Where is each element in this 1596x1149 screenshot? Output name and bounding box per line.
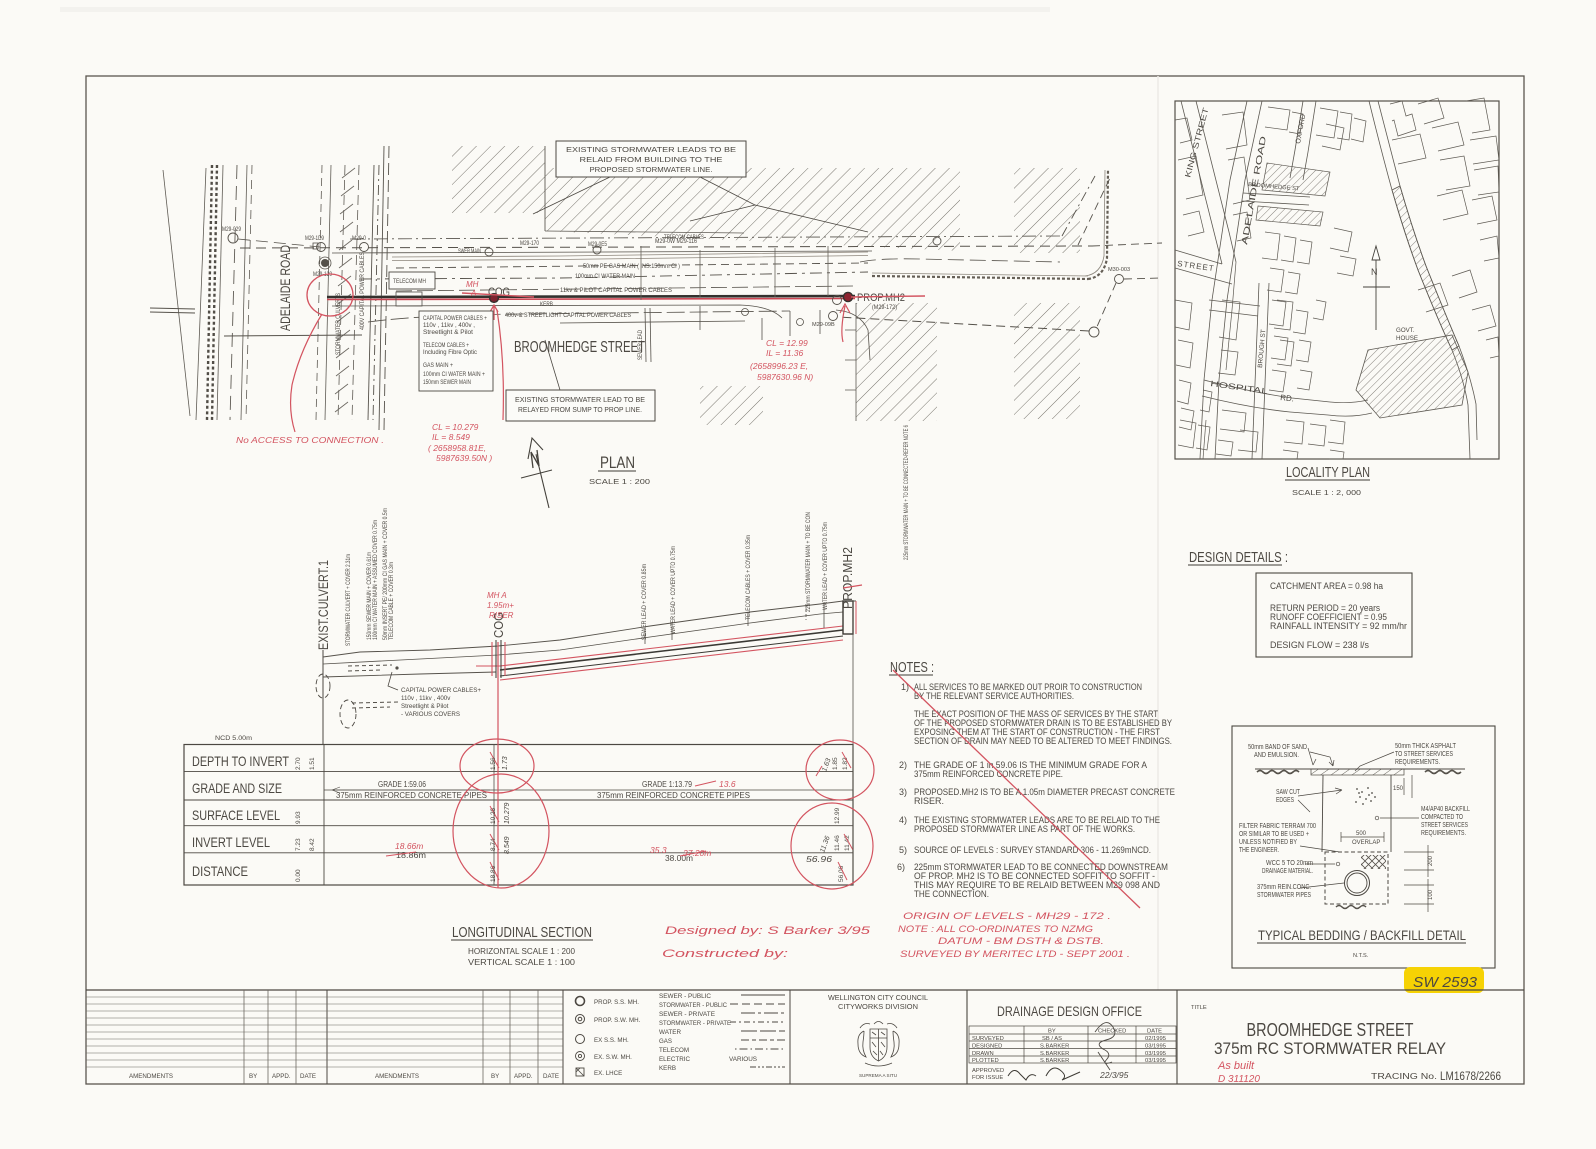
- svg-text:M30-003: M30-003: [1108, 267, 1130, 273]
- svg-text:02/1995: 02/1995: [1145, 1036, 1166, 1042]
- svg-text:Including Fibre Optic: Including Fibre Optic: [423, 349, 477, 356]
- svg-text:FILTER FABRIC TERRAM 700: FILTER FABRIC TERRAM 700: [1239, 823, 1316, 830]
- svg-text:SCALE 1 : 2, 000: SCALE 1 : 2, 000: [1292, 490, 1361, 497]
- svg-text:(2658996.23 E,: (2658996.23 E,: [750, 361, 808, 371]
- svg-text:As built: As built: [1217, 1060, 1255, 1072]
- svg-text:APPD.: APPD.: [514, 1073, 533, 1080]
- svg-text:SURFACE LEVEL: SURFACE LEVEL: [192, 807, 280, 823]
- svg-text:FOR ISSUE: FOR ISSUE: [972, 1075, 1003, 1081]
- svg-text:150mm SEWER MAIN: 150mm SEWER MAIN: [423, 379, 471, 386]
- svg-text:ORIGIN OF LEVELS - MH29: ORIGIN OF LEVELS - MH29 - 172 .: [903, 911, 1111, 922]
- svg-text:CATCHMENT AREA = 0.98 ha: CATCHMENT AREA = 0.98 ha: [1270, 581, 1383, 591]
- svg-text:CHECKED: CHECKED: [1098, 1029, 1126, 1035]
- svg-text:GRADE AND SIZE: GRADE AND SIZE: [192, 780, 282, 796]
- svg-text:9.93: 9.93: [295, 811, 302, 824]
- svg-text:BROOMHEDGE STREET: BROOMHEDGE STREET: [1247, 1020, 1414, 1040]
- svg-text:SURVEYED BY MERITEC LTD: SURVEYED BY MERITEC LTD - SEPT 2001 .: [900, 949, 1130, 960]
- svg-text:SURVEYED: SURVEYED: [972, 1036, 1004, 1042]
- svg-text:SB / AS: SB / AS: [1042, 1036, 1062, 1042]
- svg-text:APPROVED: APPROVED: [972, 1068, 1004, 1074]
- svg-text:EXISTING STORMWATER LEADS TO B: EXISTING STORMWATER LEADS TO BE: [566, 147, 736, 154]
- svg-text:- VARIOUS COVERS: - VARIOUS COVERS: [401, 711, 460, 718]
- svg-text:AND EMULSION.: AND EMULSION.: [1254, 752, 1299, 759]
- svg-text:OR SIMILAR TO BE USED +: OR SIMILAR TO BE USED +: [1239, 831, 1309, 838]
- svg-text:110v , 11kv , 400v ,: 110v , 11kv , 400v ,: [423, 322, 475, 329]
- svg-text:M29-170: M29-170: [520, 240, 539, 247]
- svg-text:SEWER - PUBLIC: SEWER - PUBLIC: [659, 993, 712, 1000]
- svg-text:PLAN: PLAN: [600, 454, 635, 472]
- svg-text:IL = 11.36: IL = 11.36: [766, 348, 804, 358]
- svg-text:0.00: 0.00: [295, 869, 302, 882]
- svg-text:PLOTTED: PLOTTED: [972, 1058, 999, 1064]
- svg-text:TELECOM CABLES +: TELECOM CABLES +: [423, 342, 469, 349]
- svg-text:DATE: DATE: [1147, 1029, 1162, 1035]
- svg-text:GRADE 1:13.79: GRADE 1:13.79: [642, 780, 692, 789]
- svg-text:RAINFALL INTENSITY = 92 mm/hr: RAINFALL INTENSITY = 92 mm/hr: [1270, 621, 1407, 631]
- svg-text:VERTICAL SCALE 1 : 100: VERTICAL SCALE 1 : 100: [468, 958, 576, 967]
- svg-text:VARIOUS: VARIOUS: [729, 1056, 757, 1063]
- svg-text:5): 5): [899, 845, 907, 855]
- svg-text:100mm CI WATER MAIN +: 100mm CI WATER MAIN +: [423, 371, 485, 378]
- svg-text:03/1995: 03/1995: [1145, 1051, 1166, 1057]
- svg-text:SWER MAIN: SWER MAIN: [458, 248, 481, 255]
- svg-text:12.99: 12.99: [834, 807, 841, 824]
- svg-text:400V CAPITAL POWER CABLES: 400V CAPITAL POWER CABLES: [359, 252, 366, 330]
- svg-text:M29-0E5: M29-0E5: [588, 241, 607, 248]
- svg-text:BY THE RELEVANT SERVICE AUTHOR: BY THE RELEVANT SERVICE AUTHORITIES.: [914, 691, 1074, 701]
- svg-text:100mm CI WATER MAIN: 100mm CI WATER MAIN: [575, 273, 635, 280]
- svg-text:DRAINAGE DESIGN OFFICE: DRAINAGE DESIGN OFFICE: [997, 1003, 1142, 1019]
- svg-text:150: 150: [1393, 786, 1404, 792]
- svg-text:Streetlight & Pilot: Streetlight & Pilot: [423, 329, 473, 336]
- svg-text:TELECOM MH: TELECOM MH: [393, 279, 426, 285]
- svg-text:50mm BAND OF SAND: 50mm BAND OF SAND: [1248, 744, 1307, 751]
- svg-text:THE CONNECTION.: THE CONNECTION.: [914, 889, 989, 899]
- svg-text:SUPREMA A SITU: SUPREMA A SITU: [859, 1073, 897, 1078]
- svg-text:10.279: 10.279: [504, 802, 511, 824]
- svg-text:N: N: [1371, 267, 1378, 277]
- svg-text:( 2658958.81E,: ( 2658958.81E,: [428, 443, 486, 453]
- svg-text:DESIGNED: DESIGNED: [972, 1044, 1002, 1050]
- svg-text:DRAWN: DRAWN: [972, 1051, 994, 1057]
- svg-text:STORMWATER CULVERTS: STORMWATER CULVERTS: [335, 293, 342, 355]
- svg-text:375mm REINFORCED CONCRETE PIPE: 375mm REINFORCED CONCRETE PIPES: [597, 791, 750, 800]
- svg-text:BY: BY: [249, 1073, 257, 1080]
- svg-text:PROP. S.S. MH.: PROP. S.S. MH.: [594, 999, 639, 1006]
- svg-text:35.3: 35.3: [650, 845, 667, 855]
- svg-text:DESIGN FLOW = 238 l/s: DESIGN FLOW = 238 l/s: [1270, 640, 1369, 650]
- svg-text:TYPICAL BEDDING / BACKFILL DET: TYPICAL BEDDING / BACKFILL DETAIL: [1258, 928, 1466, 943]
- svg-text:400v-& STREETLIGHT CAPITAL POW: 400v-& STREETLIGHT CAPITAL POWER CABLES: [505, 312, 631, 319]
- svg-text:M4/AP40 BACKFILL: M4/AP40 BACKFILL: [1421, 806, 1470, 813]
- svg-text:50mm PE GAS MAIN ( INS.150mm C: 50mm PE GAS MAIN ( INS.150mm CI ): [583, 263, 680, 270]
- svg-text:03/1995: 03/1995: [1145, 1058, 1166, 1064]
- svg-text:100: 100: [1428, 889, 1434, 900]
- svg-text:200: 200: [1428, 855, 1434, 866]
- svg-text:RELAID FROM BUILDING TO THE: RELAID FROM BUILDING TO THE: [580, 157, 723, 164]
- svg-text:REQUIREMENTS.: REQUIREMENTS.: [1421, 830, 1466, 837]
- svg-text:ADELAIDE ROAD: ADELAIDE ROAD: [277, 245, 293, 331]
- svg-text:LONGITUDINAL SECTION: LONGITUDINAL SECTION: [452, 924, 592, 941]
- svg-text:TELECOM CABLE + COVER 0.3m: TELECOM CABLE + COVER 0.3m: [388, 562, 395, 640]
- svg-text:STORMWATER PIPES: STORMWATER PIPES: [1257, 892, 1311, 899]
- svg-text:RISER.: RISER.: [914, 796, 944, 806]
- svg-text:5987639.50N ): 5987639.50N ): [436, 453, 492, 463]
- svg-text:DATUM - BM DSTH & DSTB.: DATUM - BM DSTH & DSTB.: [938, 936, 1104, 947]
- svg-text:225mm STORMWATER MAIN + TO BE: 225mm STORMWATER MAIN + TO BE CONNECTED-…: [903, 425, 910, 560]
- svg-text:CAPITAL POWER CABLES+: CAPITAL POWER CABLES+: [401, 687, 481, 694]
- svg-text:ELECTRIC: ELECTRIC: [659, 1056, 691, 1063]
- svg-text:375m RC STORMWATER RELAY: 375m RC STORMWATER RELAY: [1214, 1039, 1446, 1058]
- svg-text:DRAINAGE MATERIAL.: DRAINAGE MATERIAL.: [1262, 868, 1313, 875]
- svg-text:GAS MAIN +: GAS MAIN +: [423, 362, 453, 369]
- svg-text:8.42: 8.42: [309, 838, 316, 851]
- svg-text:SAW CUT: SAW CUT: [1276, 789, 1301, 796]
- svg-text:INVERT LEVEL: INVERT LEVEL: [192, 834, 270, 850]
- svg-text:NCD 5.00m: NCD 5.00m: [215, 735, 252, 742]
- svg-text:1.51: 1.51: [309, 757, 316, 770]
- svg-text:KERB: KERB: [659, 1065, 676, 1072]
- svg-text:110v , 11kv , 400v: 110v , 11kv , 400v: [401, 695, 451, 702]
- svg-text:N.T.S.: N.T.S.: [1353, 953, 1369, 959]
- svg-text:STORMWATER CULVERT + COVER 2.3: STORMWATER CULVERT + COVER 2.31m: [345, 554, 352, 646]
- svg-text:CITYWORKS DIVISION: CITYWORKS DIVISION: [838, 1004, 918, 1011]
- svg-text:OVERLAP: OVERLAP: [1352, 840, 1380, 846]
- svg-text:56.96: 56.96: [806, 855, 833, 864]
- svg-text:DEPTH TO INVERT: DEPTH TO INVERT: [192, 753, 289, 769]
- svg-text:COMPACTED TO: COMPACTED TO: [1421, 814, 1463, 821]
- svg-text:WATER: WATER: [659, 1029, 682, 1036]
- svg-text:EDGES: EDGES: [1276, 797, 1294, 804]
- svg-text:BY: BY: [491, 1073, 499, 1080]
- svg-text:RD.: RD.: [1280, 393, 1295, 403]
- svg-text:225mm STORMWATER MAIN + TO BE: 225mm STORMWATER MAIN + TO BE CON: [805, 512, 812, 612]
- svg-text:TELECOM CABLES + COVER 0.35m: TELECOM CABLES + COVER 0.35m: [745, 535, 752, 620]
- svg-text:3): 3): [899, 787, 907, 797]
- svg-text:AMENDMENTS: AMENDMENTS: [375, 1073, 419, 1080]
- svg-text:D 311120: D 311120: [1218, 1074, 1260, 1085]
- svg-text:M29-0: M29-0: [352, 235, 366, 242]
- svg-text:Designed by: S Barker 3/95: Designed by: S Barker 3/95: [665, 925, 871, 937]
- svg-text:18.66m: 18.66m: [395, 841, 423, 851]
- svg-text:APPD.: APPD.: [272, 1073, 291, 1080]
- svg-text:SCALE 1 : 200: SCALE 1 : 200: [589, 477, 650, 486]
- svg-text:TRACING No.: TRACING No.: [1371, 1071, 1437, 1081]
- svg-text:PROPOSED STORMWATER LINE AS PA: PROPOSED STORMWATER LINE AS PART OF THE …: [914, 824, 1135, 834]
- svg-text:AMENDMENTS: AMENDMENTS: [129, 1073, 173, 1080]
- svg-text:500: 500: [1356, 831, 1367, 837]
- svg-text:EX S.S. MH.: EX S.S. MH.: [594, 1037, 629, 1044]
- svg-text:11.42: 11.42: [844, 835, 851, 851]
- svg-text:PROPOSED STORMWATER LINE.: PROPOSED STORMWATER LINE.: [590, 167, 713, 174]
- svg-text:100mm CI WATER MAIN + ASSUMED: 100mm CI WATER MAIN + ASSUMED COVER 0.75…: [372, 520, 379, 640]
- svg-text:BROOMHEDGE STREET: BROOMHEDGE STREET: [514, 339, 645, 356]
- svg-text:COG: COG: [488, 285, 510, 299]
- svg-text:6): 6): [897, 862, 905, 872]
- svg-text:M29-1D9: M29-1D9: [305, 235, 324, 242]
- svg-text:LOCALITY PLAN: LOCALITY PLAN: [1286, 464, 1370, 481]
- svg-text:WELLINGTON CITY COUNCIL: WELLINGTON CITY COUNCIL: [828, 995, 928, 1002]
- svg-text:1.73: 1.73: [502, 756, 509, 770]
- svg-text:UNLESS NOTIFIED BY: UNLESS NOTIFIED BY: [1239, 839, 1297, 846]
- svg-text:2): 2): [899, 760, 907, 770]
- svg-text:PROP.MH2: PROP.MH2: [841, 547, 855, 609]
- svg-text:SEWER - PRIVATE: SEWER - PRIVATE: [659, 1011, 715, 1018]
- svg-text:PROP. S.W. MH.: PROP. S.W. MH.: [594, 1017, 641, 1024]
- svg-text:KERB: KERB: [540, 301, 553, 308]
- svg-text:No ACCESS TO CONNECTION .: No ACCESS TO CONNECTION .: [236, 435, 384, 445]
- svg-text:DATE: DATE: [300, 1073, 316, 1080]
- svg-text:M29-029: M29-029: [222, 226, 241, 233]
- svg-text:NOTE : ALL CO-ORDINATES TO: NOTE : ALL CO-ORDINATES TO NZMG: [898, 924, 1093, 935]
- svg-text:5987630.96 N): 5987630.96 N): [757, 372, 813, 382]
- svg-text:EX. S.W. MH.: EX. S.W. MH.: [594, 1054, 632, 1061]
- svg-text:2.70: 2.70: [295, 757, 302, 770]
- svg-text:SECTION OF DRAIN MAY NEED TO B: SECTION OF DRAIN MAY NEED TO BE ALTERED …: [914, 736, 1172, 746]
- svg-text:MH: MH: [466, 280, 479, 289]
- svg-text:13.6: 13.6: [719, 779, 736, 789]
- svg-text:EXISTING STORMWATER LEAD TO BE: EXISTING STORMWATER LEAD TO BE: [515, 397, 645, 404]
- svg-text:M29-09B: M29-09B: [812, 322, 835, 328]
- svg-text:11.46: 11.46: [834, 835, 841, 851]
- svg-text:HORIZONTAL SCALE 1 : 200: HORIZONTAL SCALE 1 : 200: [468, 947, 576, 956]
- svg-text:03/1995: 03/1995: [1145, 1044, 1166, 1050]
- svg-text:375mm REINFORCED CONCRETE PIPE: 375mm REINFORCED CONCRETE PIPE.: [914, 769, 1063, 779]
- svg-text:375mm REINFORCED CONCRETE PIPE: 375mm REINFORCED CONCRETE PIPES: [336, 791, 487, 800]
- svg-text:Constructed by:: Constructed by:: [662, 948, 788, 960]
- svg-text:A: A: [470, 289, 476, 298]
- svg-text:22/3/95: 22/3/95: [1099, 1070, 1129, 1080]
- svg-text:EXIST.CULVERT.1: EXIST.CULVERT.1: [315, 560, 331, 650]
- svg-text:THE ENGINEER.: THE ENGINEER.: [1239, 847, 1279, 854]
- svg-text:(M29-172): (M29-172): [872, 304, 897, 311]
- svg-text:WATER LEAD + COVER UPTO 0.75m: WATER LEAD + COVER UPTO 0.75m: [670, 546, 677, 634]
- svg-text:STORMWATER - PRIVATE: STORMWATER - PRIVATE: [659, 1020, 731, 1027]
- svg-text:HOUSE: HOUSE: [1396, 335, 1418, 342]
- svg-text:BY: BY: [1048, 1029, 1056, 1035]
- svg-text:REQUIREMENTS.: REQUIREMENTS.: [1395, 759, 1440, 766]
- svg-text:GRADE 1:59.06: GRADE 1:59.06: [378, 780, 426, 789]
- svg-text:GOVT.: GOVT.: [1396, 327, 1415, 334]
- svg-text:CAPITAL POWER CABLES +: CAPITAL POWER CABLES +: [423, 315, 487, 322]
- svg-text:PROP.MH2: PROP.MH2: [857, 292, 905, 304]
- svg-text:IL = 8.549: IL = 8.549: [432, 432, 470, 442]
- svg-text:Streetlight & Pilot: Streetlight & Pilot: [401, 703, 449, 710]
- svg-text:LM1678/2266: LM1678/2266: [1440, 1071, 1501, 1083]
- svg-text:TITLE: TITLE: [1191, 1005, 1207, 1011]
- svg-text:GAS: GAS: [659, 1038, 672, 1045]
- svg-text:S.BARKER: S.BARKER: [1040, 1044, 1069, 1050]
- svg-text:DATE: DATE: [543, 1073, 559, 1080]
- svg-text:11kv & PILOT CAPITAL POWER CAB: 11kv & PILOT CAPITAL POWER CABLES: [560, 287, 672, 294]
- svg-text:RISER: RISER: [489, 611, 514, 620]
- svg-text:50mm THICK ASPHALT: 50mm THICK ASPHALT: [1395, 743, 1457, 750]
- svg-text:S.BARKER: S.BARKER: [1040, 1051, 1069, 1057]
- svg-text:STORMWATER - PUBLIC: STORMWATER - PUBLIC: [659, 1002, 728, 1009]
- svg-text:SOURCE OF LEVELS : SURVEY STAN: SOURCE OF LEVELS : SURVEY STANDARD 306 -…: [914, 845, 1151, 855]
- svg-text:SEWER LEAD + COVER 0.85m: SEWER LEAD + COVER 0.85m: [641, 564, 648, 640]
- svg-text:SW 2593: SW 2593: [1413, 974, 1478, 991]
- svg-text:1.95m+: 1.95m+: [487, 601, 514, 610]
- svg-text:DISTANCE: DISTANCE: [192, 863, 248, 879]
- svg-text:1.85: 1.85: [832, 757, 839, 770]
- svg-text:S.BARKER: S.BARKER: [1040, 1058, 1069, 1064]
- svg-text:PROPOSED.MH2 IS TO BE A 1.05m: PROPOSED.MH2 IS TO BE A 1.05m DIAMETER P…: [914, 787, 1175, 797]
- svg-text:4): 4): [899, 815, 907, 825]
- svg-text:8.549: 8.549: [504, 836, 511, 854]
- svg-text:TO STREET SERVICES: TO STREET SERVICES: [1395, 751, 1453, 758]
- svg-text:MH A: MH A: [487, 591, 507, 600]
- svg-text:CL = 10.279: CL = 10.279: [432, 422, 479, 432]
- svg-text:7.23: 7.23: [295, 838, 302, 851]
- svg-text:WCC 5 TO 20mm: WCC 5 TO 20mm: [1266, 860, 1313, 867]
- svg-text:DESIGN DETAILS :: DESIGN DETAILS :: [1189, 549, 1288, 566]
- svg-text:TELECOM: TELECOM: [659, 1047, 689, 1054]
- svg-text:EX. LHCE: EX. LHCE: [594, 1070, 622, 1077]
- svg-text:RELAYED FROM SUMP TO PROP LINE: RELAYED FROM SUMP TO PROP LINE.: [518, 407, 642, 414]
- svg-text:CL = 12.99: CL = 12.99: [766, 338, 808, 348]
- svg-text:STREET SERVICES: STREET SERVICES: [1421, 822, 1468, 829]
- svg-text:WATER LEAD + COVER UPTO 0.75m: WATER LEAD + COVER UPTO 0.75m: [822, 522, 829, 610]
